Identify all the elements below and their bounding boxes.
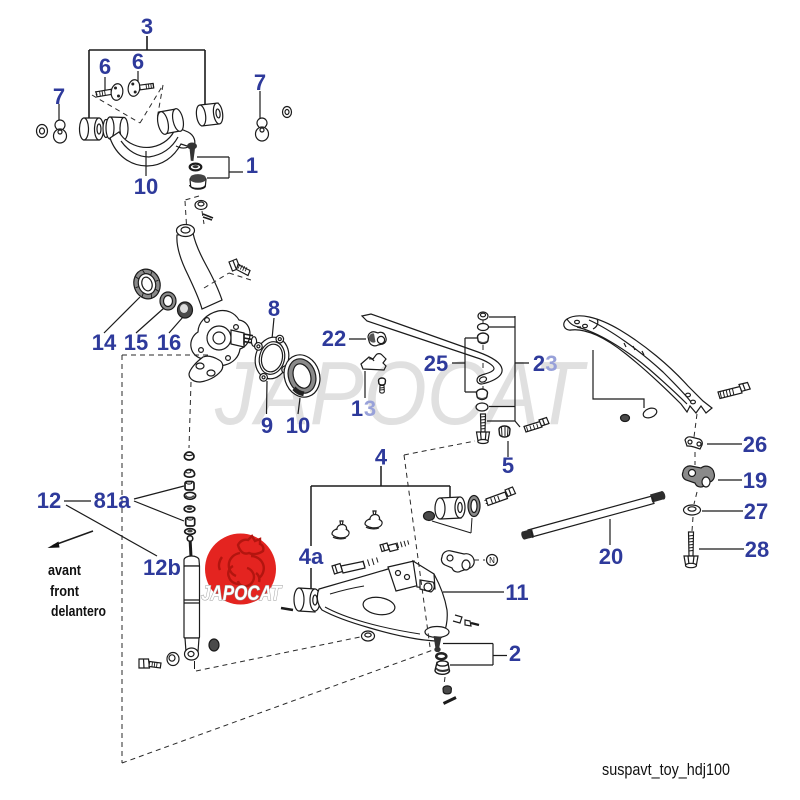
svg-text:7: 7 — [254, 70, 266, 95]
svg-text:22: 22 — [322, 326, 346, 351]
svg-text:5: 5 — [502, 453, 514, 478]
svg-text:10: 10 — [286, 413, 310, 438]
svg-text:12: 12 — [37, 488, 61, 513]
svg-text:15: 15 — [124, 330, 148, 355]
svg-text:4: 4 — [375, 445, 388, 470]
svg-text:6: 6 — [99, 54, 111, 79]
svg-text:12b: 12b — [143, 555, 181, 580]
svg-text:JAPOCAT: JAPOCAT — [201, 582, 283, 605]
svg-text:20: 20 — [599, 544, 623, 569]
svg-text:3: 3 — [545, 351, 557, 376]
svg-text:81a: 81a — [94, 488, 131, 513]
svg-text:8: 8 — [268, 296, 280, 321]
svg-text:6: 6 — [132, 49, 144, 74]
svg-text:delantero: delantero — [51, 603, 106, 620]
svg-text:2: 2 — [509, 641, 521, 666]
svg-text:front: front — [50, 583, 79, 600]
svg-text:14: 14 — [92, 330, 117, 355]
svg-text:11: 11 — [505, 580, 528, 605]
svg-text:27: 27 — [744, 499, 768, 524]
svg-text:26: 26 — [743, 432, 767, 457]
svg-text:N: N — [489, 556, 495, 565]
svg-text:3: 3 — [141, 14, 153, 39]
svg-text:9: 9 — [261, 413, 273, 438]
svg-text:1: 1 — [351, 396, 363, 421]
svg-text:19: 19 — [743, 468, 767, 493]
svg-text:suspavt_toy_hdj100: suspavt_toy_hdj100 — [602, 760, 730, 779]
svg-text:4a: 4a — [299, 544, 324, 569]
svg-text:avant: avant — [48, 562, 81, 579]
svg-text:3: 3 — [364, 396, 376, 421]
svg-text:1: 1 — [246, 153, 258, 178]
svg-text:16: 16 — [157, 330, 181, 355]
svg-text:25: 25 — [424, 351, 448, 376]
svg-text:28: 28 — [745, 537, 769, 562]
svg-text:2: 2 — [533, 351, 545, 376]
svg-text:10: 10 — [134, 174, 158, 199]
svg-text:7: 7 — [53, 84, 65, 109]
